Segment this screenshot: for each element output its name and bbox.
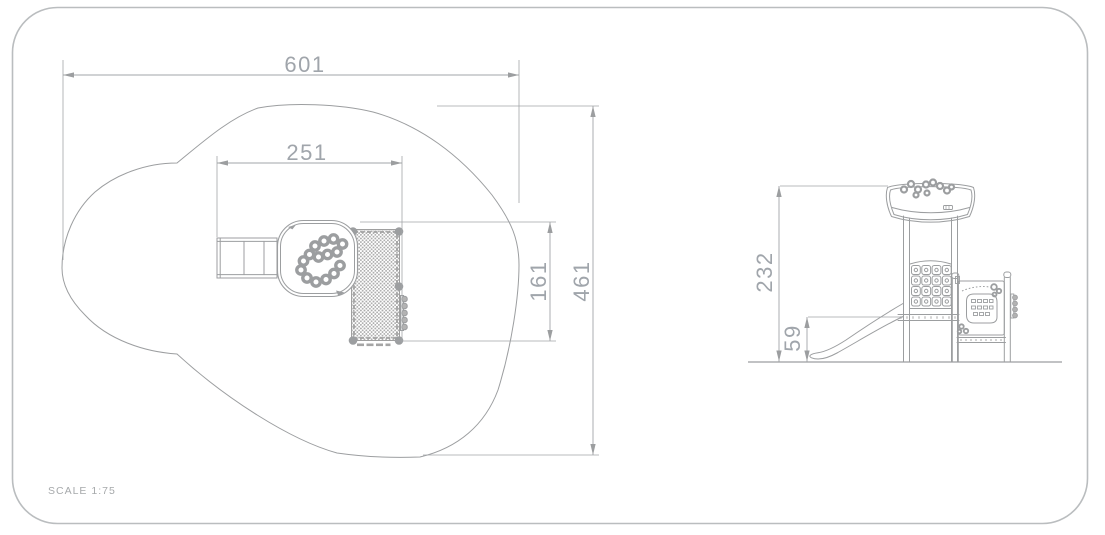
tower-canopy (886, 180, 974, 223)
plan-view: 601 251 161 461 (62, 52, 599, 457)
dimension-59: 59 (780, 317, 903, 362)
dimension-label: 251 (286, 140, 327, 165)
dotted-arc (962, 287, 992, 291)
side-panel-unit (952, 272, 1018, 362)
dimension-label: 461 (569, 260, 594, 301)
dimension-label: 232 (752, 251, 777, 292)
plan-slide (217, 238, 277, 278)
technical-drawing-canvas: 601 251 161 461 (0, 0, 1105, 535)
net-foot-dash (386, 344, 391, 347)
leaf-frame-items (972, 300, 994, 316)
post-cap (1004, 272, 1011, 278)
panel-dots-decoration (958, 324, 969, 333)
drawing-sheet: 601 251 161 461 (0, 0, 1105, 535)
dimension-label: 161 (526, 260, 551, 301)
net-foot-dash (376, 344, 383, 347)
dimension-label: 59 (780, 324, 805, 351)
net-foot-dash (367, 344, 374, 347)
elevation-view: 232 59 (748, 180, 1062, 363)
dimension-461: 461 (423, 106, 599, 455)
elevation-slide (810, 304, 903, 359)
plan-climbing-grips (401, 296, 408, 331)
plan-tower (278, 221, 358, 297)
panel-rail (957, 338, 1006, 343)
elevation-climbing-grips (1011, 294, 1018, 318)
scale-label: SCALE 1:75 (48, 485, 116, 497)
tower-deck (898, 315, 959, 321)
canopy-label-tag (944, 206, 953, 210)
canopy-flower-decoration (901, 180, 954, 198)
grid-cells (912, 266, 952, 307)
dimension-label: 601 (284, 52, 325, 77)
net-post (349, 336, 358, 345)
net-foot-dash (357, 344, 364, 347)
